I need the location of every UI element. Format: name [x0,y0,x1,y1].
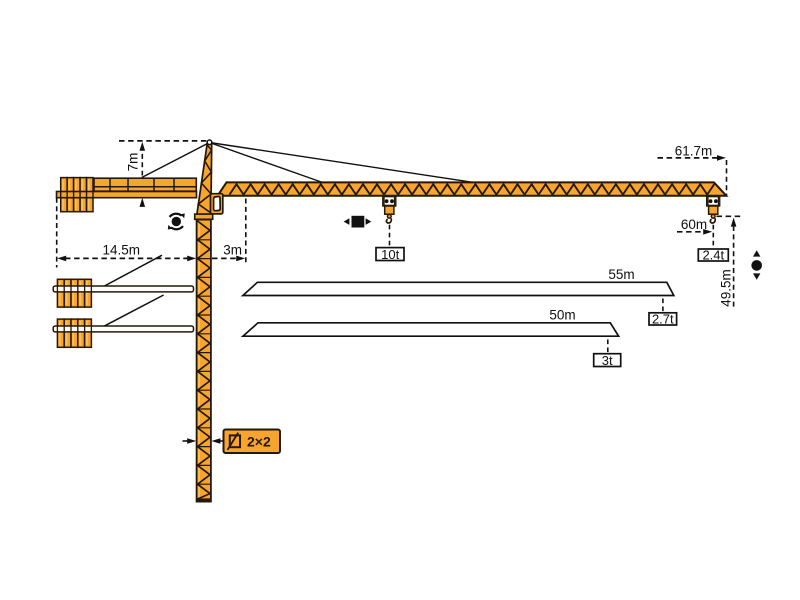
svg-text:10t: 10t [381,247,399,262]
svg-text:14.5m: 14.5m [103,242,141,257]
svg-text:50m: 50m [549,308,575,323]
svg-text:55m: 55m [608,267,634,282]
svg-text:7m: 7m [126,153,141,172]
svg-text:2×2: 2×2 [247,434,271,450]
svg-text:2.7t: 2.7t [652,312,674,327]
svg-text:3t: 3t [602,353,613,368]
svg-text:3m: 3m [223,242,242,257]
svg-text:49.5m: 49.5m [719,269,734,307]
svg-text:61.7m: 61.7m [675,144,713,159]
svg-text:2.4t: 2.4t [702,248,724,263]
svg-text:60m: 60m [681,217,707,232]
